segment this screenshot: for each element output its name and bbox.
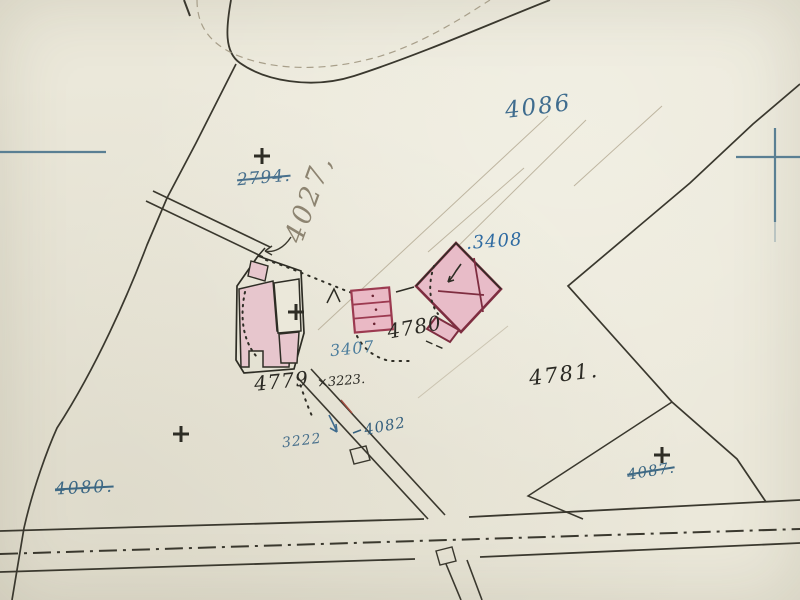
point-label-3223: ×3223.	[317, 373, 366, 390]
bottom-road	[0, 500, 800, 572]
blue-tick-arrow	[329, 415, 337, 432]
parcel-label-2794-struck: 2794.	[236, 168, 291, 190]
boundary-left-curve	[12, 64, 236, 600]
farmyard-stub	[258, 248, 265, 256]
top-edge-boundary-stub	[184, 0, 190, 16]
cadastral-map: 4086 2794. 4027, .3408 4780 3407 4781. 4…	[0, 0, 800, 600]
small-building	[248, 261, 268, 281]
parcel-label-4080-struck: 4080.	[55, 478, 114, 498]
top-road-dashed-edge	[197, 0, 490, 67]
diagonal-road	[297, 369, 482, 600]
survey-cross	[254, 148, 270, 164]
boundary-stub	[396, 287, 414, 292]
dashed-tie-line	[426, 341, 444, 349]
survey-cross	[173, 426, 189, 442]
surveyor-mark	[327, 289, 340, 303]
map-linework	[0, 0, 800, 600]
outbuilding	[279, 332, 299, 363]
boundary-right-zigzag	[568, 84, 800, 502]
parcel-label-4779: 4779	[253, 368, 310, 394]
access-road	[146, 191, 270, 257]
top-road-edge	[227, 0, 550, 83]
red-tick	[341, 400, 352, 413]
small-structure-at-junction	[436, 547, 456, 565]
house-label-3407: 3407	[329, 339, 375, 360]
bottom-road-centerline	[0, 529, 800, 554]
small-structure-on-road	[350, 446, 370, 464]
blue-dash	[353, 430, 361, 433]
house-label-3408: .3408	[465, 231, 523, 253]
registration-cross-right	[736, 128, 800, 242]
boundary-branch	[528, 402, 672, 519]
